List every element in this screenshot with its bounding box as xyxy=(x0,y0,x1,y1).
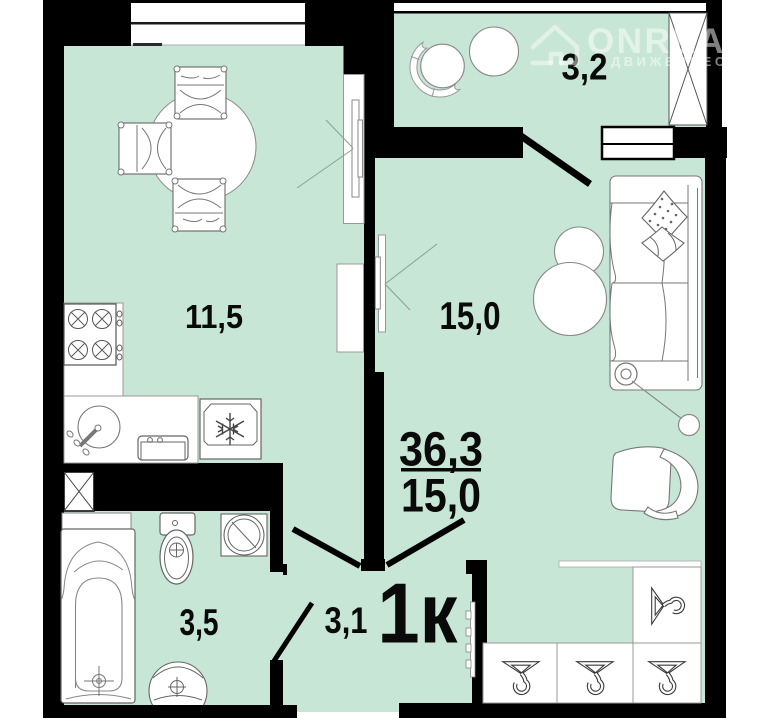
svg-text:15,0: 15,0 xyxy=(401,469,481,522)
svg-text:1к: 1к xyxy=(378,567,458,662)
svg-text:11,5: 11,5 xyxy=(185,299,243,336)
svg-text:3,1: 3,1 xyxy=(325,600,368,641)
svg-text:3,5: 3,5 xyxy=(180,602,219,643)
svg-text:ДВИЖЕНИЕСЬ: ДВИЖЕНИЕСЬ xyxy=(611,54,741,69)
svg-text:15,0: 15,0 xyxy=(440,295,501,338)
